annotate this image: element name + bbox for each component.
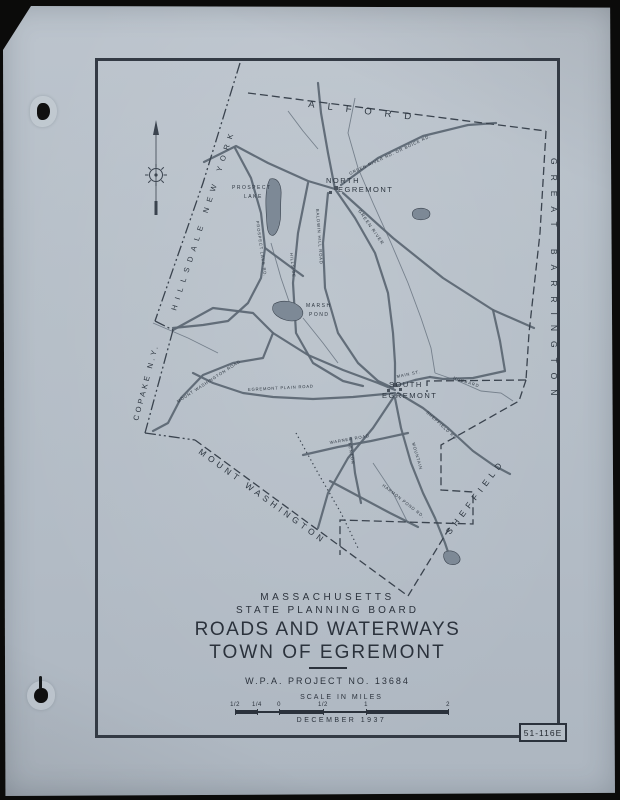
label-alford: ALFORD: [308, 99, 425, 124]
scale-bar: 1/21/401/212: [235, 702, 448, 715]
road-great-barrington-road: [343, 193, 534, 328]
boundary-state-line-jog-south: [145, 433, 195, 440]
compass-spoke: [161, 180, 163, 182]
label-egremont-plain-road: EGREMONT PLAIN ROAD: [248, 384, 314, 392]
title-underline: [309, 667, 347, 669]
label-north-egremont-1: NORTH: [326, 176, 360, 185]
label-marsh-pond-2: POND: [309, 312, 329, 318]
road-southwest-road: [318, 395, 395, 528]
road-green-river-road: [341, 123, 496, 185]
label-prospect-lake-2: LAKE: [244, 194, 263, 200]
pond-harmon-pond: [444, 551, 461, 565]
road-mount-washington-road-east: [273, 333, 395, 390]
scale-tick-label: 2: [446, 702, 450, 708]
map-date: DECEMBER 1937: [235, 717, 448, 724]
scale-segment: [279, 710, 323, 714]
label-sheffield: SHEFFIELD: [444, 457, 507, 536]
boundary-town-line-great-barrington: [526, 131, 546, 380]
compass-north-arrow-icon: [153, 120, 159, 135]
label-green-river-road: GREEN RIVER RD. OR BOICE RD.: [348, 133, 431, 175]
punch-hole-bottom: [34, 688, 48, 703]
village-block: [329, 191, 332, 194]
label-mount-washington: MOUNT WASHINGTON: [197, 447, 329, 546]
sheet-number: 51-116E: [524, 728, 563, 738]
title-block: MASSACHUSETTS STATE PLANNING BOARD ROADS…: [98, 592, 557, 724]
title-subtitle: TOWN OF EGREMONT: [98, 642, 557, 664]
scale-tick-label: 1/2: [318, 702, 328, 708]
label-prospect-lake-1: PROSPECT: [232, 185, 272, 191]
scale-segment: [235, 710, 257, 714]
road-alford-road: [318, 83, 335, 189]
scale-group: SCALE IN MILES 1/21/401/212 DECEMBER 193…: [235, 694, 448, 724]
compass-spoke: [148, 167, 150, 169]
road-mount-washington-road: [153, 308, 273, 431]
label-north-egremont-2: EGREMONT: [338, 185, 393, 194]
scale-segment: [257, 711, 279, 713]
scale-tick-label: 0: [277, 702, 281, 708]
title-agency: STATE PLANNING BOARD: [98, 605, 557, 616]
title-state: MASSACHUSETTS: [98, 592, 557, 603]
label-sheffield-road: SHEFFIELD RD.: [425, 410, 459, 442]
road-east-village-road: [430, 310, 505, 379]
map-sheet-paper: ALFORDGREAT BARRINGTONSHEFFIELDMOUNT WAS…: [3, 6, 615, 796]
pond-boundary-pond: [412, 208, 430, 220]
compass-spoke: [161, 167, 163, 169]
label-copake-ny: COPAKE N.Y.: [131, 342, 160, 421]
label-hillsdale-new-york: HILLSDALE NEW YORK: [169, 127, 237, 312]
waterway-north-brook: [288, 111, 318, 149]
photo-backdrop: { "colors": { "paper": "#b5bec7", "ink":…: [0, 0, 620, 800]
title-main: ROADS AND WATERWAYS: [98, 619, 557, 641]
scale-tick-label: 1/4: [252, 702, 262, 708]
map-border-frame: ALFORDGREAT BARRINGTONSHEFFIELDMOUNT WAS…: [95, 58, 560, 738]
label-marsh-pond-1: MARSH: [306, 303, 332, 309]
scale-label: SCALE IN MILES: [235, 694, 448, 701]
label-south-egremont-1: SOUTH: [389, 380, 423, 389]
label-main-street: MAIN ST.: [396, 369, 421, 379]
punch-hole-top: [37, 103, 50, 120]
sheet-number-box: 51-116E: [519, 723, 567, 742]
scale-segment: [323, 711, 366, 713]
label-baldwin-hill-road: BALDWIN HILL ROAD: [315, 209, 324, 265]
label-south-egremont-2: EGREMONT: [382, 391, 437, 400]
scale-segment: [366, 710, 448, 714]
label-fenton-road: FENTON: [347, 442, 356, 464]
pond-marsh-pond-pond: [273, 301, 303, 321]
scale-tick: [448, 709, 449, 715]
label-mount-washington-road: MOUNT WASHINGTON ROAD: [176, 359, 242, 404]
scale-tick-label: 1/2: [230, 702, 240, 708]
label-great-barrington: GREAT BARRINGTON: [549, 158, 557, 405]
road-lake-east-connector: [265, 248, 303, 276]
compass-spoke: [148, 180, 150, 182]
compass-center-dot: [154, 173, 157, 176]
project-number: W.P.A. PROJECT NO. 13684: [98, 676, 557, 686]
scale-tick-label: 1: [364, 702, 368, 708]
boundary-state-line-hillsdale: [155, 63, 240, 321]
